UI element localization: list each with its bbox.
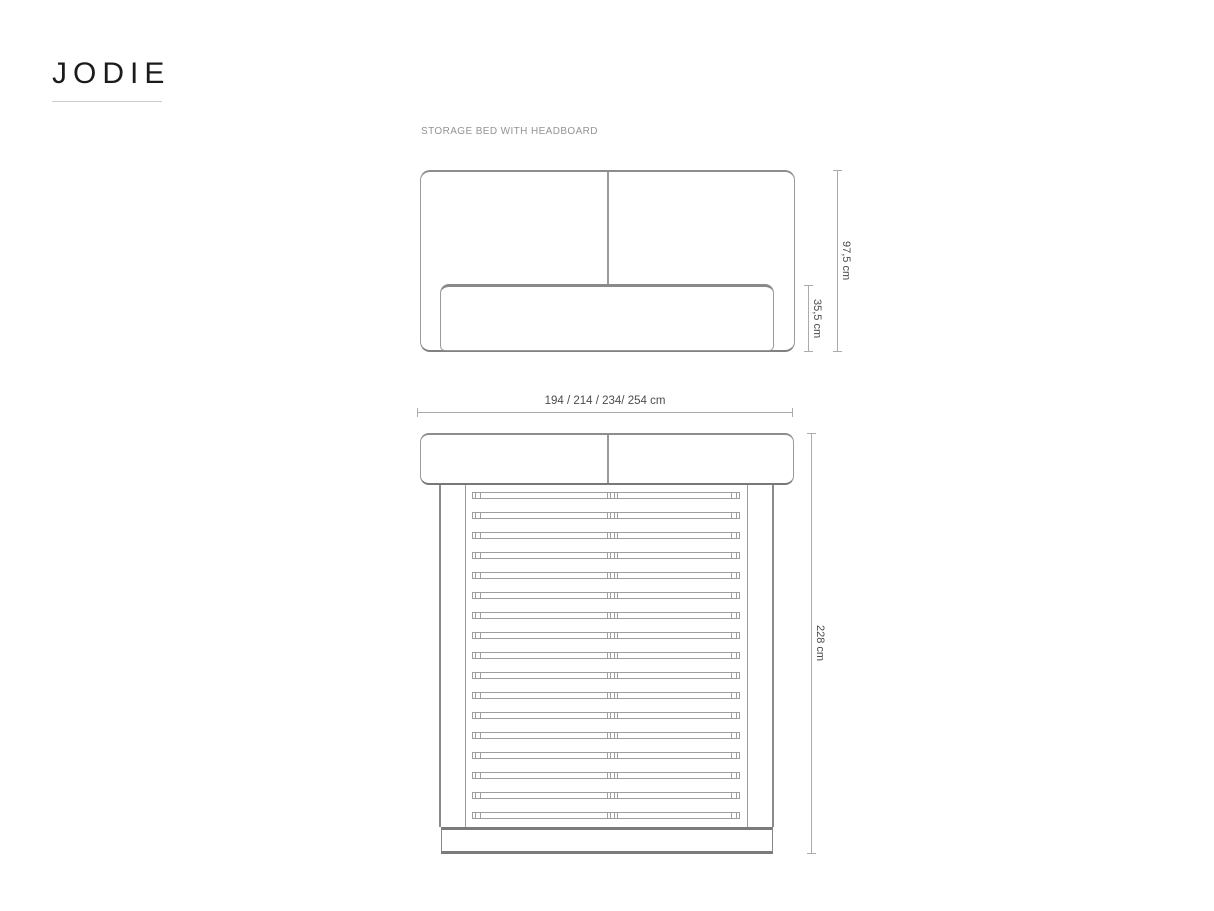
front-view-headboard-divider xyxy=(607,172,609,287)
slat-row xyxy=(472,632,740,639)
slat-row xyxy=(472,552,740,559)
slat-row xyxy=(472,792,740,799)
slat-end-cap xyxy=(475,753,481,758)
slat-row xyxy=(472,512,740,519)
slat-end-cap xyxy=(731,513,737,518)
top-view-right-rail xyxy=(747,485,774,827)
slat-end-cap xyxy=(475,493,481,498)
slat-row xyxy=(472,692,740,699)
slat-center-joint xyxy=(614,633,618,638)
dimension-label-width: 194 / 214 / 234/ 254 cm xyxy=(417,395,793,407)
slat-end-cap xyxy=(731,573,737,578)
slat-end-cap xyxy=(475,533,481,538)
front-view-bed-base xyxy=(440,284,774,351)
slat-row xyxy=(472,712,740,719)
dimension-line-base-height xyxy=(808,285,809,352)
slat-end-cap xyxy=(731,633,737,638)
slat-center-joint xyxy=(607,573,611,578)
slat-center-joint xyxy=(614,513,618,518)
slat-end-cap xyxy=(731,713,737,718)
slat-end-cap xyxy=(475,813,481,818)
slat-center-joint xyxy=(607,553,611,558)
product-dimension-sheet: JODIE STORAGE BED WITH HEADBOARD 97,5 cm… xyxy=(0,0,1214,911)
slat-center-joint xyxy=(607,793,611,798)
slat-end-cap xyxy=(475,593,481,598)
slat-center-joint xyxy=(607,753,611,758)
slat-center-joint xyxy=(614,553,618,558)
slat-row xyxy=(472,752,740,759)
slat-center-joint xyxy=(614,673,618,678)
dimension-label-total-height: 97,5 cm xyxy=(840,170,852,352)
slat-end-cap xyxy=(731,613,737,618)
slat-row xyxy=(472,672,740,679)
slat-end-cap xyxy=(475,553,481,558)
slat-end-cap xyxy=(731,653,737,658)
slat-end-cap xyxy=(475,793,481,798)
slat-center-joint xyxy=(614,753,618,758)
slat-end-cap xyxy=(475,733,481,738)
drawing-subtitle: STORAGE BED WITH HEADBOARD xyxy=(421,126,598,137)
slat-center-joint xyxy=(614,733,618,738)
slat-end-cap xyxy=(475,633,481,638)
top-view-left-rail xyxy=(439,485,466,827)
slat-center-joint xyxy=(614,773,618,778)
slat-end-cap xyxy=(475,693,481,698)
slat-row xyxy=(472,572,740,579)
slat-center-joint xyxy=(607,633,611,638)
slat-row xyxy=(472,652,740,659)
slat-center-joint xyxy=(607,733,611,738)
slat-end-cap xyxy=(475,613,481,618)
slat-center-joint xyxy=(607,513,611,518)
top-view-foot-box xyxy=(441,827,773,854)
slat-end-cap xyxy=(475,653,481,658)
slat-end-cap xyxy=(731,793,737,798)
slat-end-cap xyxy=(475,513,481,518)
slat-center-joint xyxy=(607,693,611,698)
slat-center-joint xyxy=(607,773,611,778)
slat-center-joint xyxy=(607,613,611,618)
slat-end-cap xyxy=(731,593,737,598)
slat-end-cap xyxy=(731,533,737,538)
slat-end-cap xyxy=(731,773,737,778)
brand-logo-underline xyxy=(52,101,162,102)
slat-end-cap xyxy=(731,493,737,498)
slat-center-joint xyxy=(614,573,618,578)
slat-center-joint xyxy=(614,793,618,798)
slat-row xyxy=(472,592,740,599)
slat-end-cap xyxy=(731,673,737,678)
slat-row xyxy=(472,732,740,739)
slat-end-cap xyxy=(731,553,737,558)
slat-center-joint xyxy=(614,813,618,818)
slat-center-joint xyxy=(614,593,618,598)
slat-end-cap xyxy=(475,773,481,778)
slat-end-cap xyxy=(475,573,481,578)
dimension-tick xyxy=(792,408,793,417)
slat-end-cap xyxy=(731,693,737,698)
slat-center-joint xyxy=(607,813,611,818)
top-view-headboard xyxy=(420,433,794,485)
dimension-tick xyxy=(417,408,418,417)
dimension-line-width xyxy=(417,412,793,413)
top-view-headboard-divider xyxy=(607,435,609,483)
slat-center-joint xyxy=(607,533,611,538)
slat-center-joint xyxy=(614,693,618,698)
slat-center-joint xyxy=(607,713,611,718)
slat-end-cap xyxy=(731,813,737,818)
slat-end-cap xyxy=(731,753,737,758)
slat-center-joint xyxy=(614,533,618,538)
dimension-line-total-height xyxy=(837,170,838,352)
slat-center-joint xyxy=(607,593,611,598)
slat-end-cap xyxy=(475,713,481,718)
slat-deck xyxy=(472,492,740,826)
dimension-label-base-height: 35,5 cm xyxy=(811,285,823,352)
slat-end-cap xyxy=(731,733,737,738)
dimension-label-length: 228 cm xyxy=(814,433,826,854)
slat-end-cap xyxy=(475,673,481,678)
slat-center-joint xyxy=(614,493,618,498)
slat-center-joint xyxy=(607,673,611,678)
slat-center-joint xyxy=(607,493,611,498)
slat-center-joint xyxy=(607,653,611,658)
slat-row xyxy=(472,612,740,619)
slat-center-joint xyxy=(614,613,618,618)
dimension-line-length xyxy=(811,433,812,854)
slat-row xyxy=(472,532,740,539)
slat-center-joint xyxy=(614,713,618,718)
slat-row xyxy=(472,772,740,779)
slat-row xyxy=(472,492,740,499)
slat-row xyxy=(472,812,740,819)
slat-center-joint xyxy=(614,653,618,658)
brand-logo: JODIE xyxy=(52,57,170,91)
